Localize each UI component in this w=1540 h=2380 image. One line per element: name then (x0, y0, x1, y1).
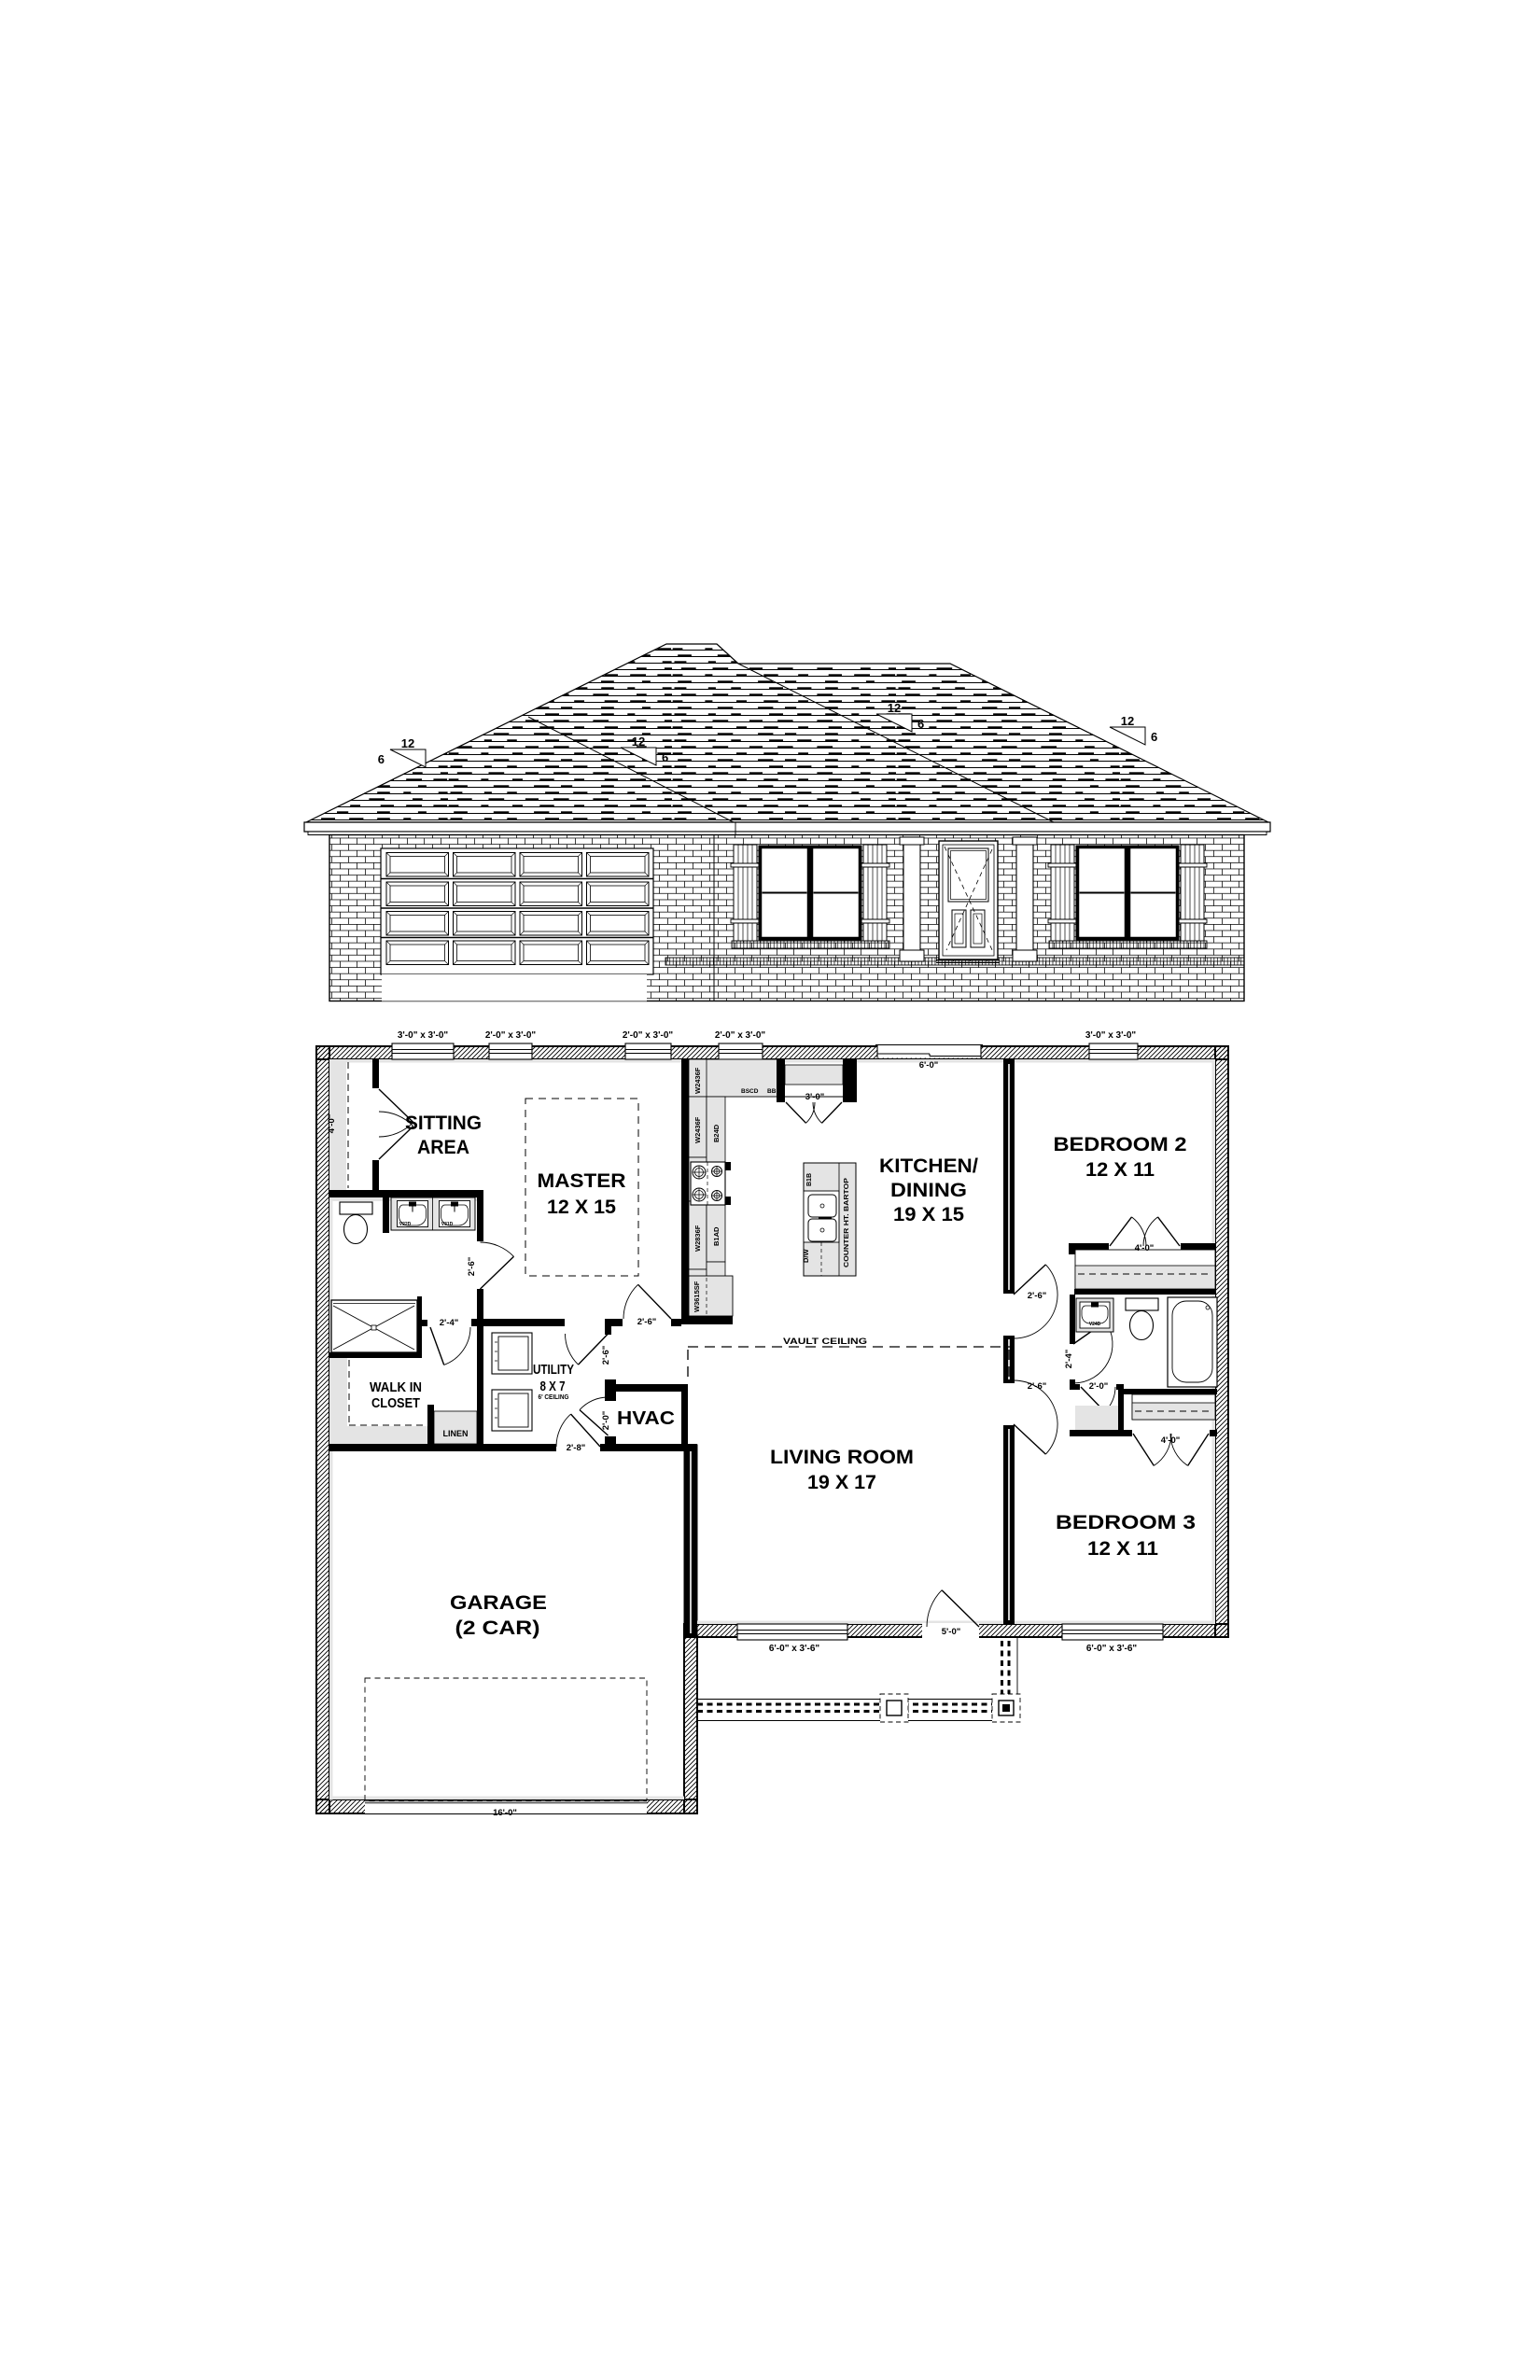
svg-text:MASTER: MASTER (538, 1170, 626, 1192)
svg-text:VAULT CEILING: VAULT CEILING (783, 1337, 867, 1347)
svg-text:6' CEILING: 6' CEILING (539, 1393, 569, 1401)
svg-text:(2 CAR): (2 CAR) (455, 1617, 540, 1639)
svg-text:12: 12 (1121, 714, 1134, 728)
svg-text:12 X 11: 12 X 11 (1087, 1538, 1158, 1560)
svg-text:2'-6": 2'-6" (637, 1317, 657, 1327)
svg-text:6'-0" x 3'-6": 6'-0" x 3'-6" (769, 1644, 820, 1654)
svg-text:BB: BB (767, 1088, 777, 1095)
svg-text:CLOSET: CLOSET (371, 1396, 420, 1411)
svg-text:3'-0": 3'-0" (805, 1092, 825, 1102)
svg-text:W3615SF: W3615SF (693, 1281, 701, 1312)
svg-text:19 X 17: 19 X 17 (807, 1472, 876, 1493)
svg-text:19 X 15: 19 X 15 (893, 1204, 964, 1225)
svg-text:2'-6": 2'-6" (601, 1346, 611, 1365)
svg-text:16'-0": 16'-0" (493, 1808, 517, 1818)
svg-text:W2436F: W2436F (693, 1116, 702, 1143)
svg-text:B1AD: B1AD (712, 1226, 721, 1246)
svg-text:6: 6 (917, 717, 924, 731)
svg-text:B1B: B1B (806, 1173, 813, 1186)
svg-text:2'-0": 2'-0" (1089, 1381, 1109, 1392)
svg-text:V31D: V31D (441, 1222, 454, 1227)
svg-text:2'-0" x 3'-0": 2'-0" x 3'-0" (485, 1030, 537, 1041)
svg-text:V22D: V22D (399, 1222, 412, 1227)
svg-text:2'-0" x 3'-0": 2'-0" x 3'-0" (623, 1030, 674, 1041)
svg-text:W2436F: W2436F (693, 1067, 702, 1094)
svg-text:BEDROOM 3: BEDROOM 3 (1056, 1512, 1196, 1533)
svg-text:SITTING: SITTING (405, 1113, 482, 1134)
svg-text:12: 12 (888, 701, 901, 715)
svg-text:GARAGE: GARAGE (450, 1592, 547, 1614)
svg-text:AREA: AREA (417, 1137, 469, 1158)
svg-text:D/W: D/W (802, 1249, 810, 1264)
svg-text:5'-0": 5'-0" (942, 1627, 961, 1637)
svg-text:4'-0": 4'-0" (327, 1114, 337, 1134)
svg-text:B24D: B24D (712, 1124, 721, 1142)
svg-text:2'-0" x 3'-0": 2'-0" x 3'-0" (715, 1030, 766, 1041)
svg-text:LIVING ROOM: LIVING ROOM (770, 1447, 914, 1468)
svg-text:2'-6": 2'-6" (1028, 1291, 1047, 1301)
svg-text:2'-6": 2'-6" (1028, 1381, 1047, 1392)
svg-text:12 X 11: 12 X 11 (1085, 1159, 1155, 1181)
svg-text:LINEN: LINEN (443, 1429, 469, 1438)
svg-text:2'-4": 2'-4" (1064, 1350, 1074, 1369)
svg-text:2'-8": 2'-8" (567, 1443, 586, 1453)
svg-text:2'-4": 2'-4" (440, 1318, 459, 1328)
svg-text:2'-6": 2'-6" (467, 1257, 477, 1277)
svg-text:DINING: DINING (890, 1180, 967, 1201)
svg-text:6'-0": 6'-0" (919, 1060, 939, 1071)
svg-text:BEDROOM 2: BEDROOM 2 (1054, 1134, 1187, 1155)
svg-text:6: 6 (1151, 730, 1157, 744)
svg-text:HVAC: HVAC (617, 1408, 675, 1429)
svg-text:12 X 15: 12 X 15 (547, 1197, 616, 1218)
svg-text:KITCHEN/: KITCHEN/ (879, 1155, 978, 1177)
svg-text:12: 12 (401, 736, 414, 750)
svg-text:3'-0" x 3'-0": 3'-0" x 3'-0" (398, 1030, 449, 1041)
svg-text:W2836F: W2836F (693, 1225, 702, 1252)
svg-text:2'-0": 2'-0" (601, 1411, 611, 1431)
svg-text:12: 12 (632, 735, 645, 749)
svg-text:4'-0": 4'-0" (1161, 1435, 1181, 1446)
svg-text:V24D: V24D (1089, 1322, 1101, 1327)
svg-text:6: 6 (662, 750, 668, 764)
svg-text:6'-0" x 3'-6": 6'-0" x 3'-6" (1086, 1644, 1138, 1654)
svg-text:3'-0" x 3'-0": 3'-0" x 3'-0" (1085, 1030, 1137, 1041)
svg-text:UTILITY: UTILITY (533, 1363, 574, 1378)
svg-text:BSCD: BSCD (741, 1088, 759, 1095)
svg-text:COUNTER HT. BARTOP: COUNTER HT. BARTOP (842, 1178, 850, 1267)
svg-text:WALK IN: WALK IN (370, 1380, 422, 1395)
svg-text:6: 6 (378, 752, 385, 766)
svg-text:4'-0": 4'-0" (1135, 1243, 1155, 1253)
